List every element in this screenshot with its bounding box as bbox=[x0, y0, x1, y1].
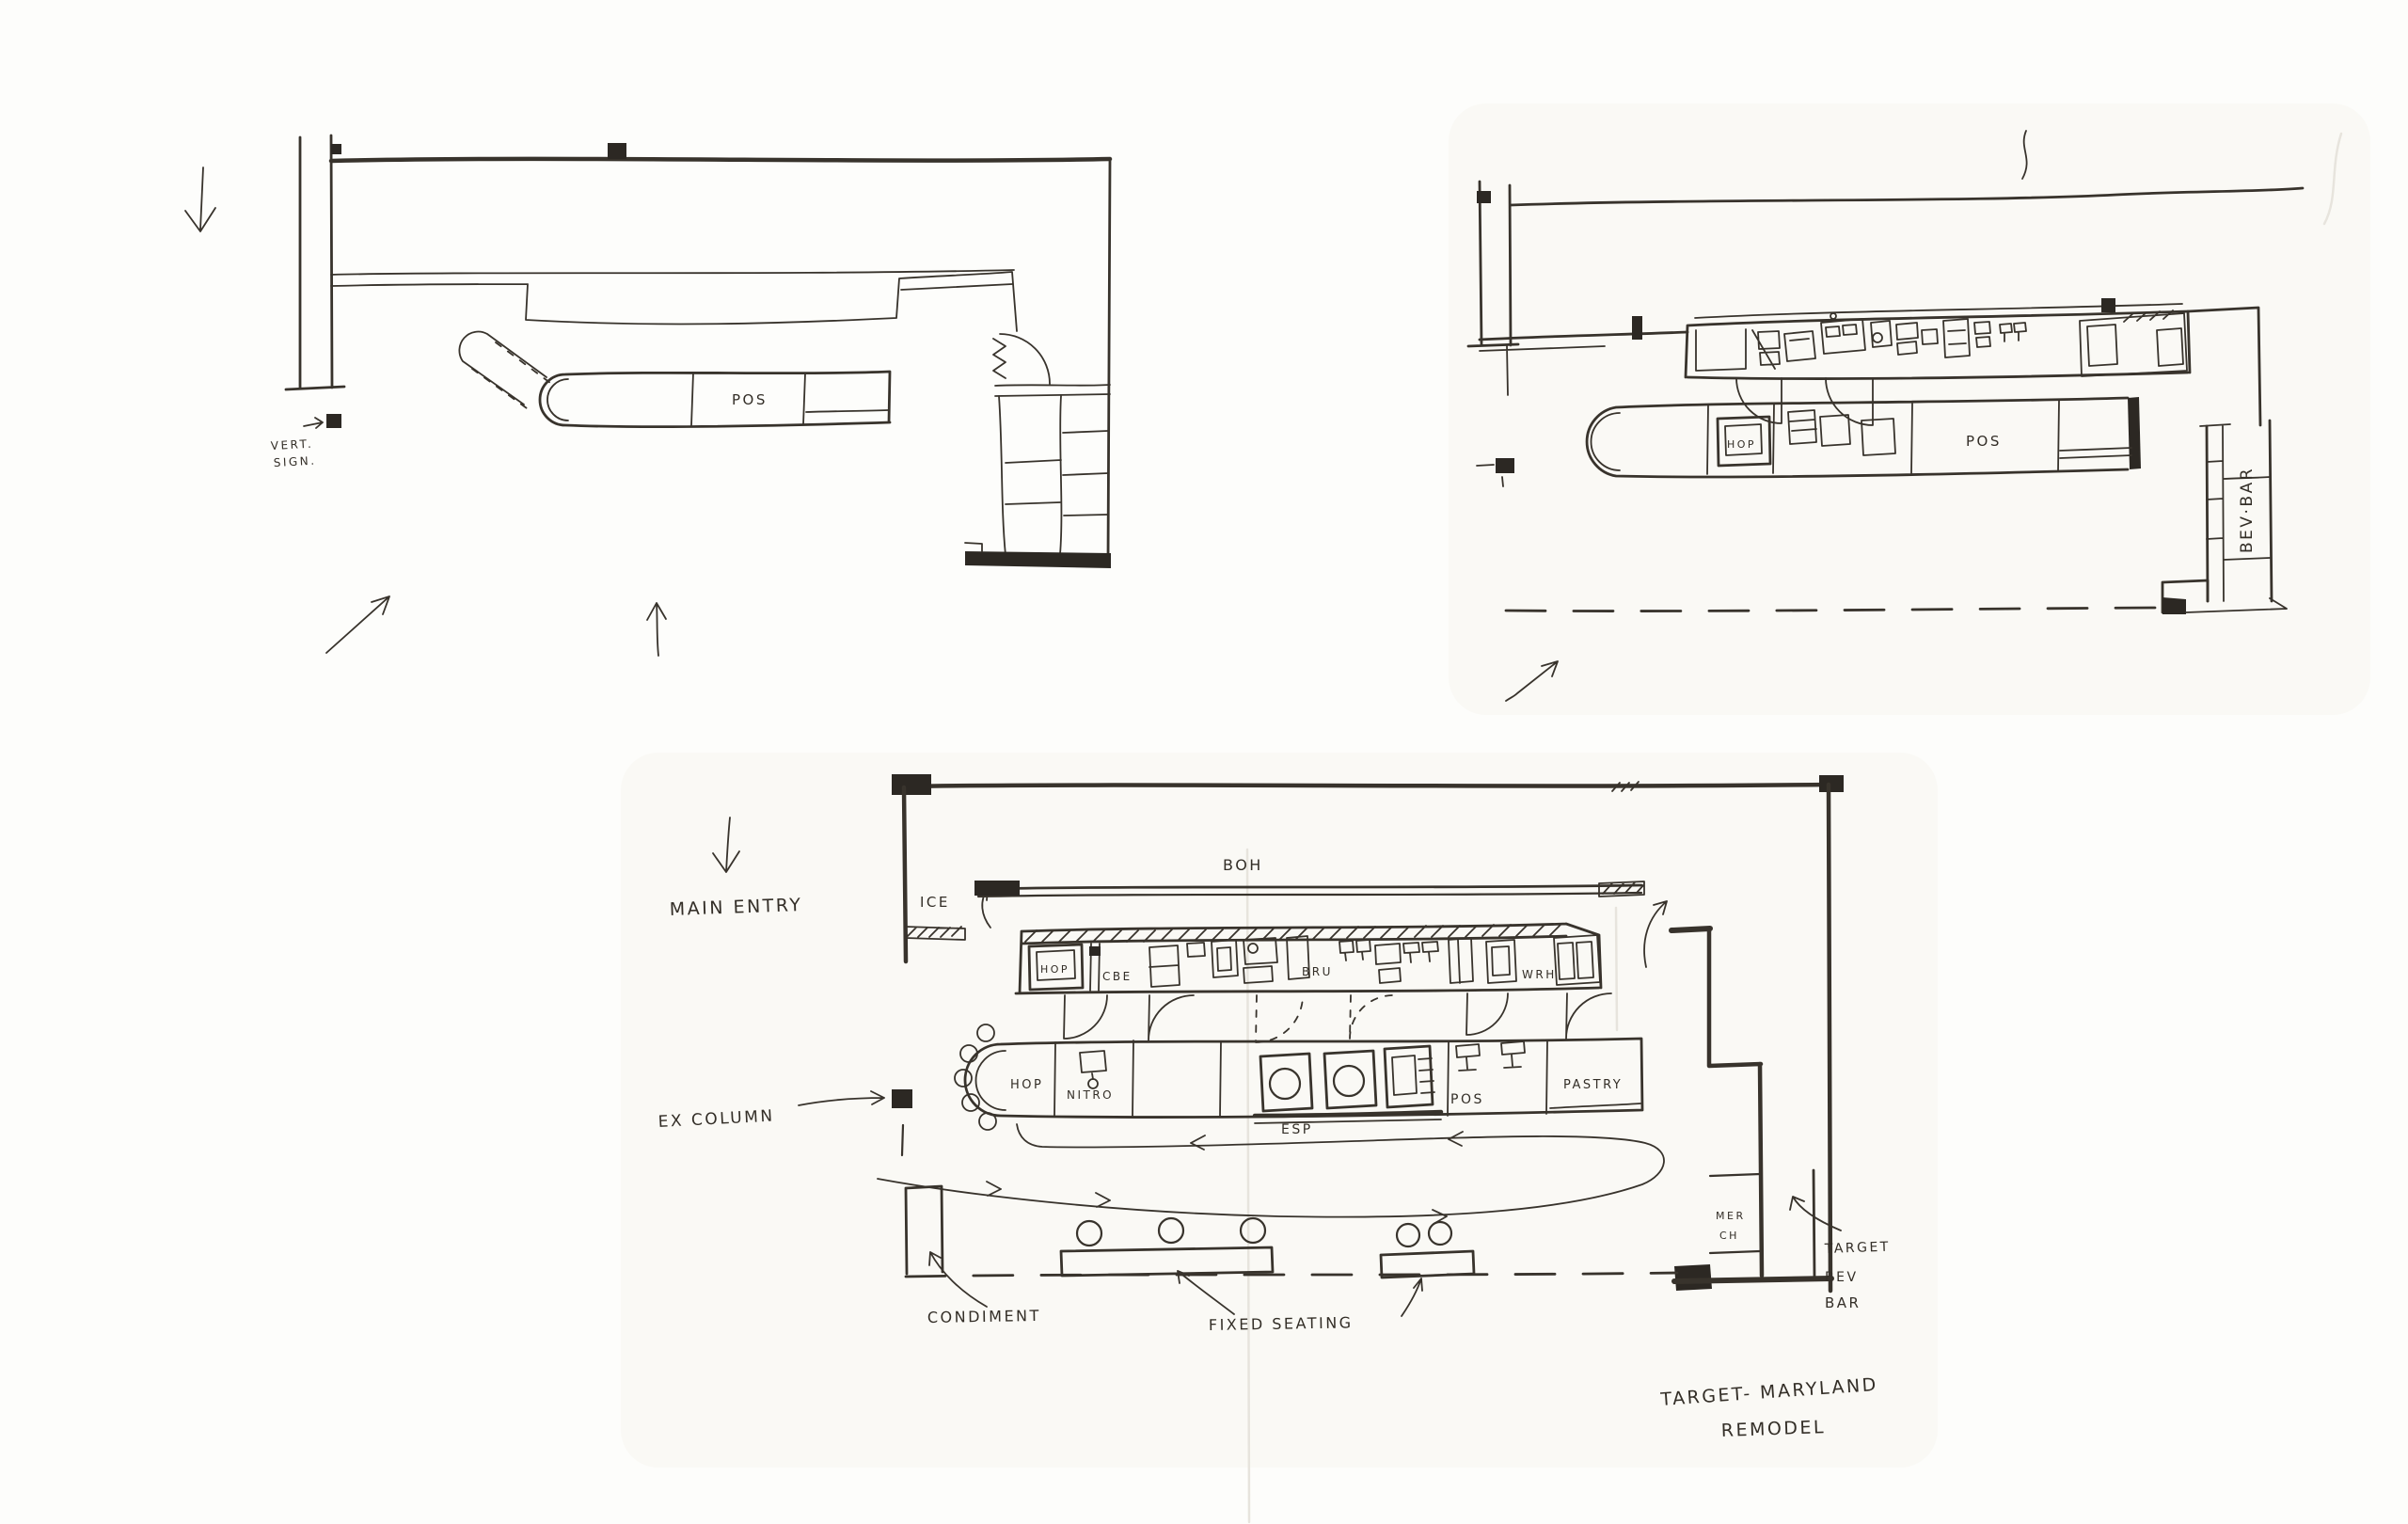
cbe-label: CBE bbox=[1102, 970, 1133, 983]
cabinet-base bbox=[965, 551, 1111, 568]
merch-label-line2: CH bbox=[1719, 1230, 1739, 1242]
esp-label: ESP bbox=[1281, 1122, 1313, 1137]
right-wall bbox=[1108, 160, 1110, 562]
vert-sign-label-line2: SIGN. bbox=[273, 454, 316, 469]
wrh-label: WRH bbox=[1522, 968, 1557, 981]
merch-label-line1: MER bbox=[1716, 1210, 1746, 1222]
target-bev-label-line2: BEV bbox=[1825, 1270, 1859, 1285]
column-leader bbox=[902, 1125, 903, 1155]
wall-tick bbox=[608, 143, 626, 159]
top-wall bbox=[903, 785, 1830, 786]
top-wall bbox=[331, 159, 1110, 161]
boh-label: BOH bbox=[1223, 856, 1263, 874]
ice-label: ICE bbox=[920, 894, 950, 911]
hop-label: HOP bbox=[1727, 438, 1756, 451]
sign-column bbox=[1496, 458, 1514, 473]
corridor-wall bbox=[1814, 1170, 1814, 1278]
wall-cap bbox=[1819, 775, 1844, 792]
right-wall bbox=[1829, 785, 1830, 1291]
pos-label: POS bbox=[732, 391, 768, 408]
wall-tick bbox=[1477, 191, 1491, 203]
wall-tick bbox=[2101, 298, 2115, 312]
pos-label: POS bbox=[1450, 1092, 1484, 1107]
bru-label: BRU bbox=[1302, 965, 1333, 978]
wall-cap bbox=[892, 774, 931, 795]
existing-column bbox=[892, 1089, 912, 1108]
vert-sign-label-line1: VERT. bbox=[270, 437, 313, 452]
wall-corner-fill bbox=[1674, 1264, 1712, 1291]
vert-sign-column bbox=[326, 414, 341, 428]
wall-corner-fill bbox=[2162, 597, 2186, 614]
wall-segment bbox=[1671, 929, 1710, 930]
counter-end-cap bbox=[2128, 397, 2141, 469]
bev-bar-label: BEV·BAR bbox=[2238, 467, 2257, 553]
nitro-label: NITRO bbox=[1067, 1088, 1114, 1102]
target-bev-label-line1: TARGET bbox=[1824, 1240, 1892, 1257]
pastry-label: PASTRY bbox=[1563, 1078, 1623, 1092]
scanned-sketch-canvas: POS VERT. SIGN. bbox=[0, 0, 2408, 1524]
target-bev-label-line3: BAR bbox=[1825, 1294, 1861, 1311]
sheet-title-line2: REMODEL bbox=[1720, 1417, 1826, 1441]
condiment-label: CONDIMENT bbox=[927, 1307, 1041, 1326]
fixed-seating-label: FIXED SEATING bbox=[1209, 1313, 1354, 1334]
wall-nub bbox=[331, 144, 341, 154]
bottom-right-wall bbox=[1674, 1278, 1831, 1281]
wall-tick bbox=[1632, 316, 1642, 340]
paper-tone-patch bbox=[1449, 103, 2370, 715]
equipment-nub bbox=[1089, 946, 1101, 956]
hop-back-label: HOP bbox=[1040, 963, 1069, 976]
wall-cap bbox=[974, 881, 1020, 896]
pos-label: POS bbox=[1966, 433, 2002, 450]
hop-front-label: HOP bbox=[1010, 1078, 1043, 1092]
